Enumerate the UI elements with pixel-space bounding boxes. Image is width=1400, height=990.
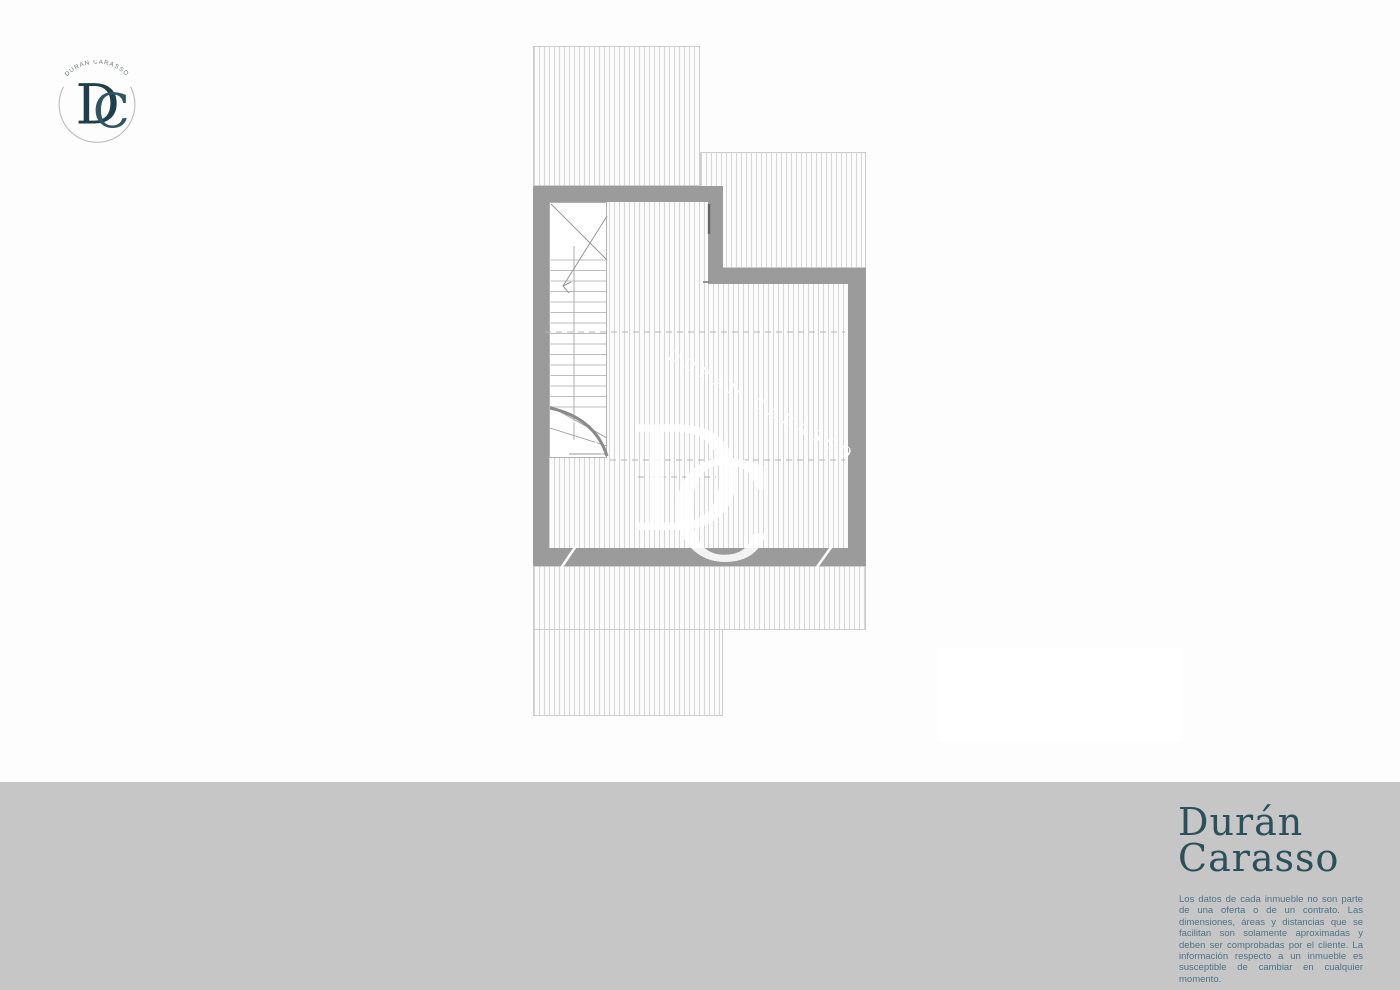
footer-brand-line1: Durán — [1178, 804, 1339, 840]
roof-hatch-lower-left — [533, 630, 723, 716]
roof-hatch-upper-left — [533, 46, 700, 186]
blank-overlay — [937, 648, 1183, 742]
brand-logo-svg: DURAN CARASSO D C — [55, 60, 139, 146]
watermark-monogram-c: C — [669, 444, 775, 582]
brand-logo: DURAN CARASSO D C — [55, 60, 139, 146]
brochure-page: DURAN CARASSO D C — [0, 0, 1400, 990]
wall-top — [533, 186, 723, 202]
logo-monogram-c: C — [93, 84, 130, 140]
floor-plan: DURAN CARASSO D C — [533, 46, 866, 716]
wall-left — [533, 186, 549, 566]
stairwell — [549, 202, 607, 458]
wall-right — [848, 268, 866, 566]
footer-brand-line2: Carasso — [1178, 840, 1339, 876]
wall-right-room-top — [708, 268, 866, 284]
footer-disclaimer: Los datos de cada inmueble no son parte … — [1179, 894, 1363, 985]
roof-hatch-upper-right — [700, 152, 866, 268]
footer-brand-name: Durán Carasso — [1178, 804, 1339, 876]
